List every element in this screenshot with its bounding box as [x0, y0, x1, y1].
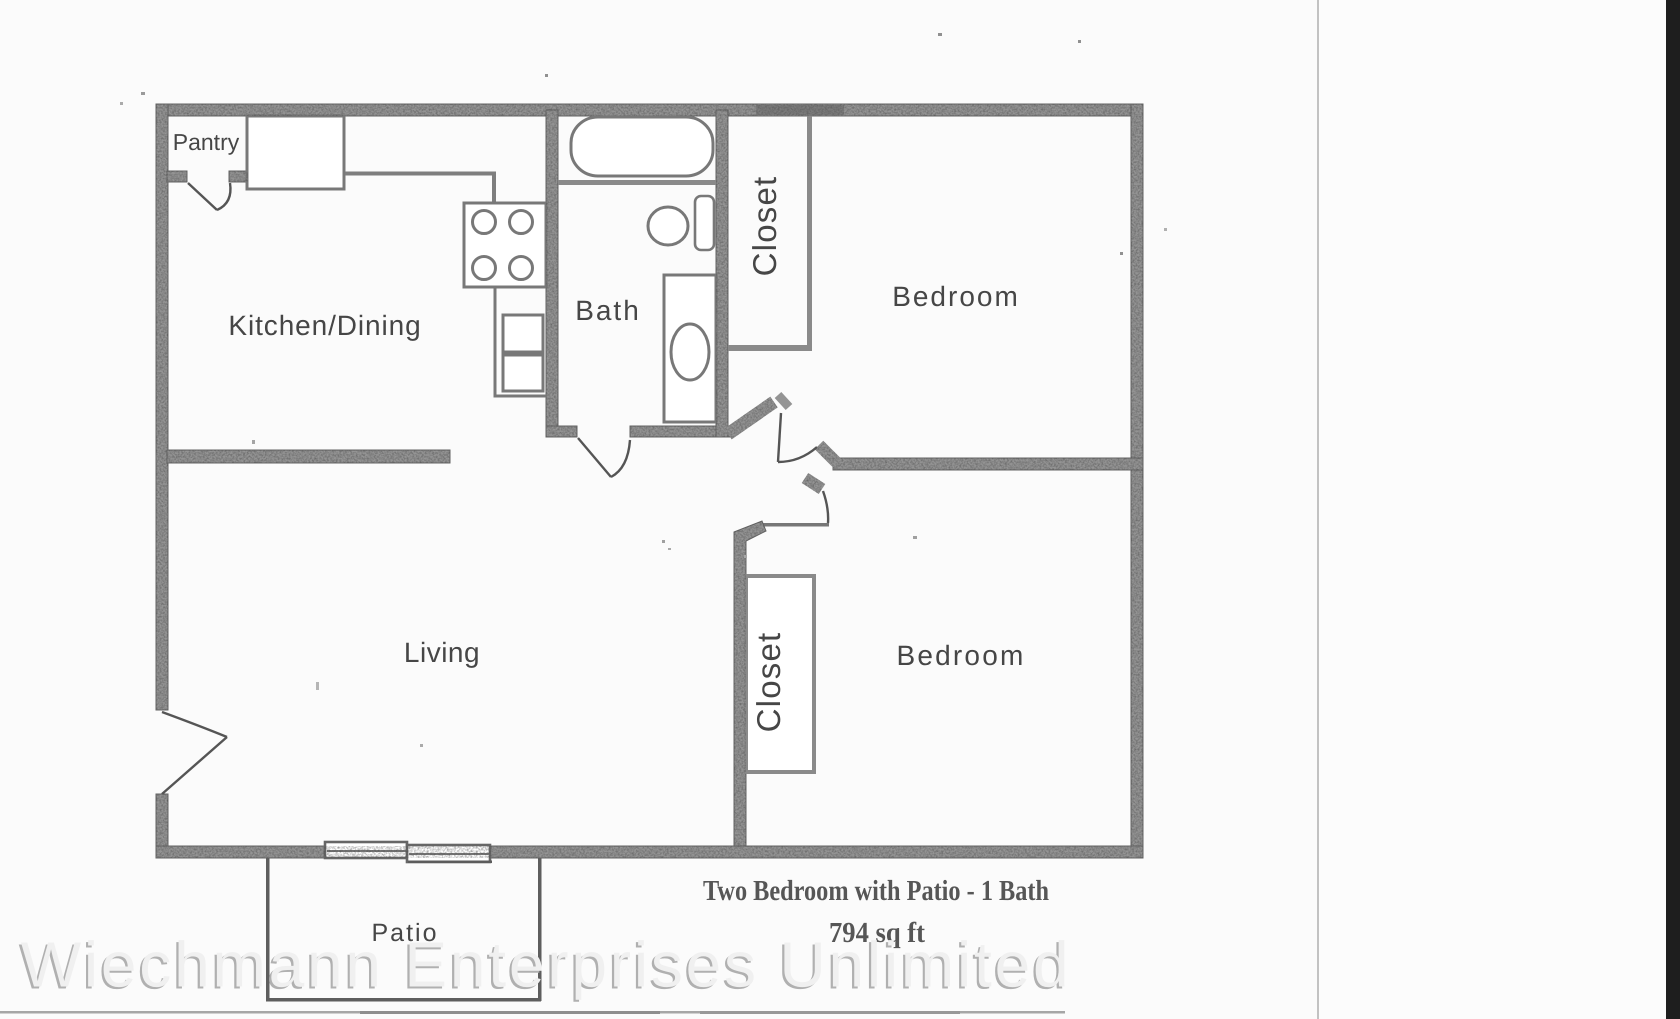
svg-text:Kitchen/Dining: Kitchen/Dining: [228, 310, 421, 341]
svg-text:Closet: Closet: [746, 176, 783, 277]
svg-text:Wiechmann Enterprises Unlimite: Wiechmann Enterprises Unlimited: [21, 929, 1072, 1001]
svg-text:Pantry: Pantry: [173, 129, 240, 155]
svg-text:Living: Living: [404, 637, 480, 668]
svg-text:Bedroom: Bedroom: [892, 281, 1020, 312]
svg-text:Two Bedroom with Patio - 1 Bat: Two Bedroom with Patio - 1 Bath: [703, 875, 1049, 907]
svg-text:Bedroom: Bedroom: [896, 640, 1025, 671]
svg-text:Closet: Closet: [750, 632, 787, 733]
svg-text:Bath: Bath: [575, 295, 641, 326]
